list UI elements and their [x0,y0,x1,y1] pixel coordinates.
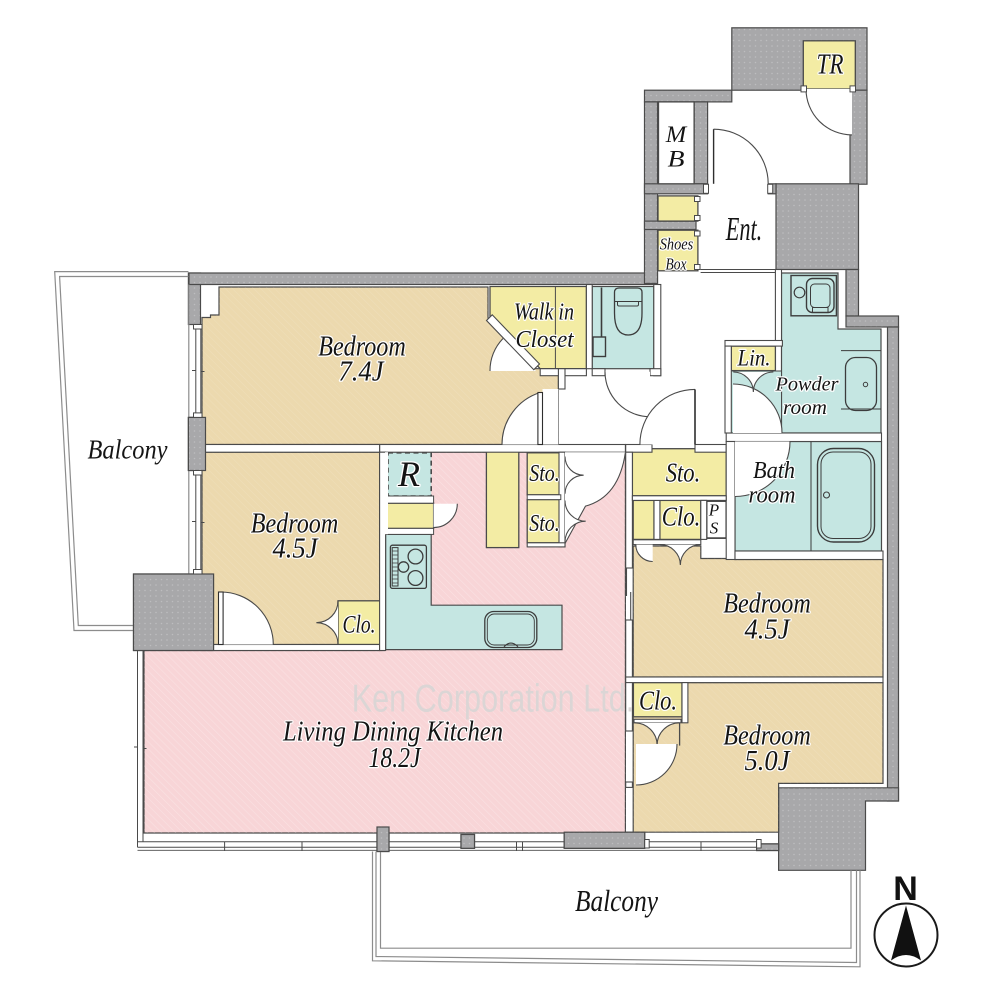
svg-text:TR: TR [817,49,844,81]
svg-text:Shoes: Shoes [660,235,694,254]
svg-text:Lin.: Lin. [737,346,771,371]
svg-text:4.5J: 4.5J [273,533,319,565]
svg-text:Sto.: Sto. [666,458,701,488]
svg-text:Sto.: Sto. [529,461,560,487]
svg-text:room: room [783,397,827,419]
svg-text:Clo.: Clo. [639,686,677,716]
svg-text:4.5J: 4.5J [745,614,791,646]
svg-text:Box: Box [666,255,688,274]
svg-text:Bath: Bath [753,458,795,484]
svg-text:Sto.: Sto. [529,511,560,537]
svg-text:P: P [708,501,719,520]
svg-text:Walk in: Walk in [514,300,574,326]
svg-text:B: B [668,147,685,172]
svg-text:S: S [710,519,719,538]
svg-text:M: M [665,122,689,147]
svg-text:Ken Corporation Ltd.: Ken Corporation Ltd. [352,677,635,720]
svg-text:N: N [893,870,918,908]
svg-text:Ent.: Ent. [725,211,762,248]
svg-text:Clo.: Clo. [343,612,376,639]
svg-text:Powder: Powder [774,374,838,396]
svg-text:Closet: Closet [516,327,575,353]
svg-text:7.4J: 7.4J [339,356,385,388]
svg-text:R: R [397,454,420,494]
svg-text:18.2J: 18.2J [369,742,422,774]
svg-text:room: room [749,483,796,509]
svg-text:Balcony: Balcony [575,883,658,918]
svg-text:5.0J: 5.0J [745,745,791,777]
svg-text:Clo.: Clo. [662,502,701,532]
svg-text:Balcony: Balcony [88,435,168,465]
